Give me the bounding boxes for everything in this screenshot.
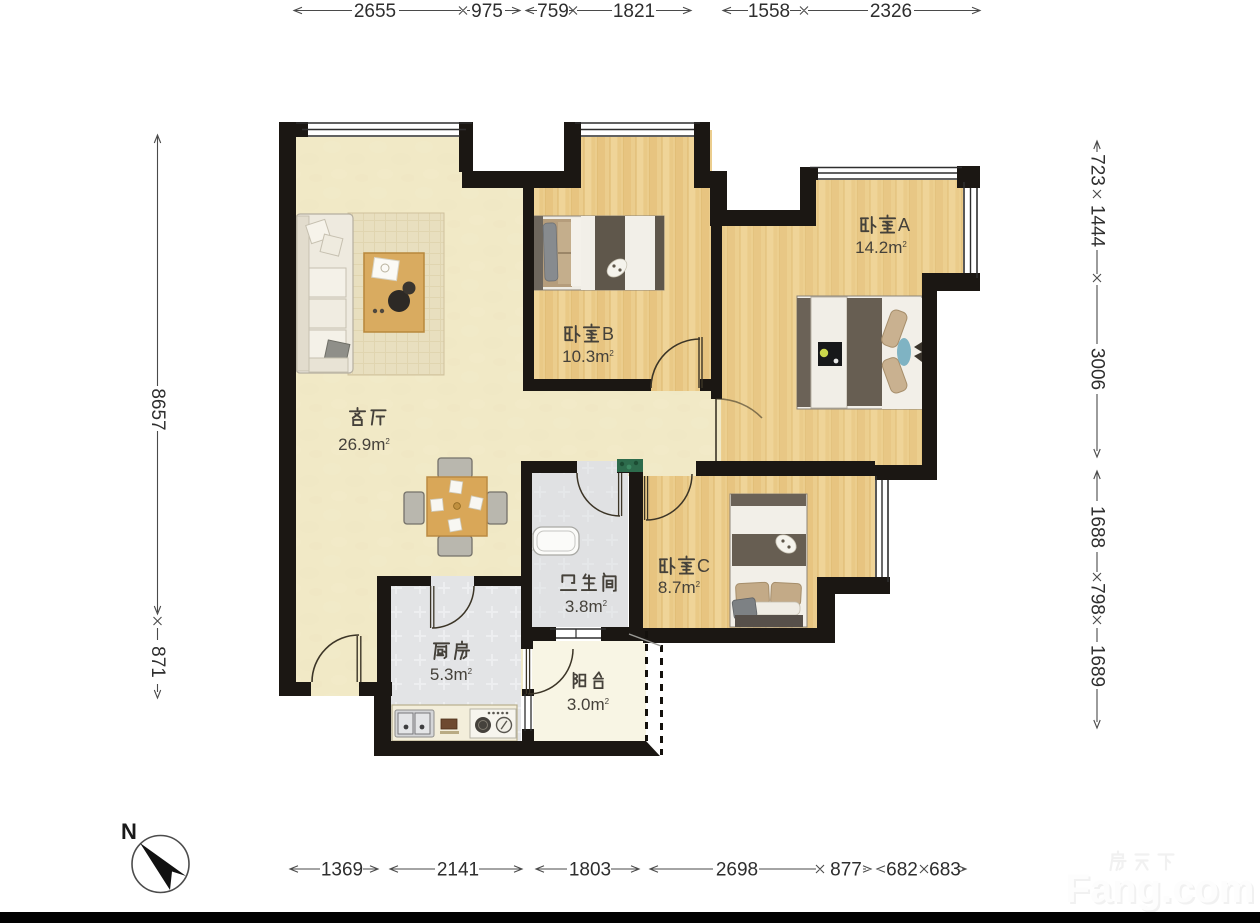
svg-text:1803: 1803 [569, 860, 611, 881]
svg-text:14.2m2: 14.2m2 [855, 238, 907, 257]
svg-text:N: N [121, 819, 137, 844]
svg-text:5.3m2: 5.3m2 [430, 665, 473, 684]
svg-text:975: 975 [471, 1, 503, 22]
svg-text:3.8m2: 3.8m2 [565, 597, 608, 616]
svg-text:1558: 1558 [748, 1, 790, 22]
svg-text:A: A [898, 215, 910, 235]
svg-text:723: 723 [1087, 154, 1108, 186]
svg-text:8.7m2: 8.7m2 [658, 578, 701, 597]
svg-text:C: C [697, 556, 710, 576]
svg-text:1444: 1444 [1087, 205, 1108, 248]
svg-text:3.0m2: 3.0m2 [567, 695, 610, 714]
svg-text:26.9m2: 26.9m2 [338, 435, 390, 454]
svg-text:798: 798 [1087, 583, 1108, 615]
svg-text:B: B [602, 324, 614, 344]
svg-text:1689: 1689 [1087, 645, 1108, 687]
svg-text:3006: 3006 [1087, 348, 1108, 390]
svg-text:1821: 1821 [613, 1, 655, 22]
svg-text:759: 759 [537, 1, 569, 22]
svg-text:1688: 1688 [1087, 506, 1108, 548]
svg-text:10.3m2: 10.3m2 [562, 347, 614, 366]
svg-text:877: 877 [830, 860, 862, 881]
svg-text:8657: 8657 [147, 388, 168, 430]
svg-text:2698: 2698 [716, 860, 758, 881]
svg-text:2655: 2655 [354, 1, 396, 22]
svg-text:2141: 2141 [437, 860, 479, 881]
svg-text:871: 871 [147, 646, 168, 678]
svg-text:1369: 1369 [321, 860, 363, 881]
svg-text:Fang.com: Fang.com [1066, 867, 1255, 911]
svg-text:2326: 2326 [870, 1, 912, 22]
svg-text:683: 683 [929, 860, 961, 881]
svg-text:682: 682 [886, 860, 918, 881]
